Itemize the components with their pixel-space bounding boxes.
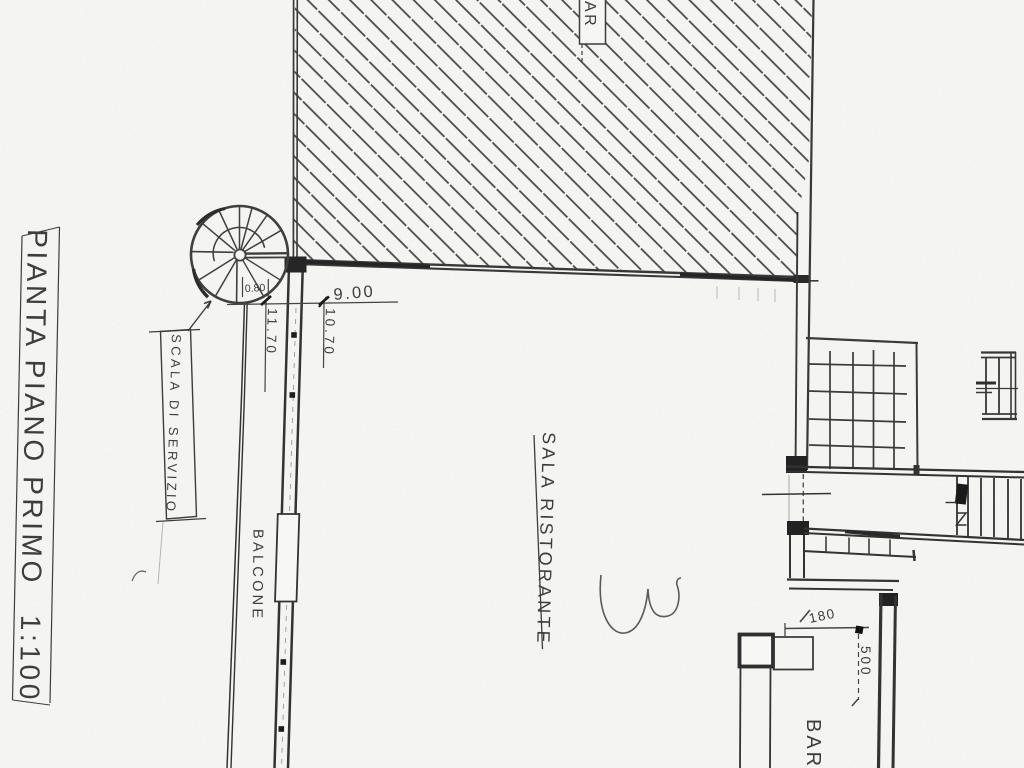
svg-text:BALCONE: BALCONE (249, 529, 266, 622)
svg-text:11.70: 11.70 (263, 308, 280, 356)
svg-text:9.00: 9.00 (333, 282, 376, 304)
svg-text:0.80: 0.80 (245, 282, 266, 295)
svg-text:AR: AR (581, 1, 598, 28)
svg-text:10.70: 10.70 (321, 308, 338, 357)
svg-text:500: 500 (858, 646, 873, 678)
svg-text:BAR: BAR (802, 719, 824, 768)
